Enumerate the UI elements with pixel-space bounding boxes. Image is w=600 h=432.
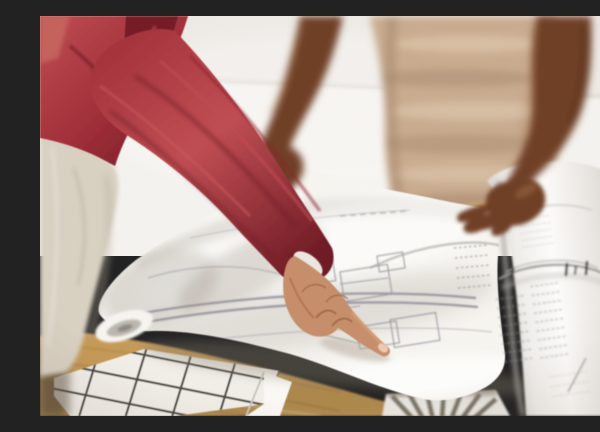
- vignette-overlay: [40, 16, 600, 416]
- photo-canvas: [40, 16, 600, 416]
- photo: Close-up photograph of two people review…: [40, 16, 600, 416]
